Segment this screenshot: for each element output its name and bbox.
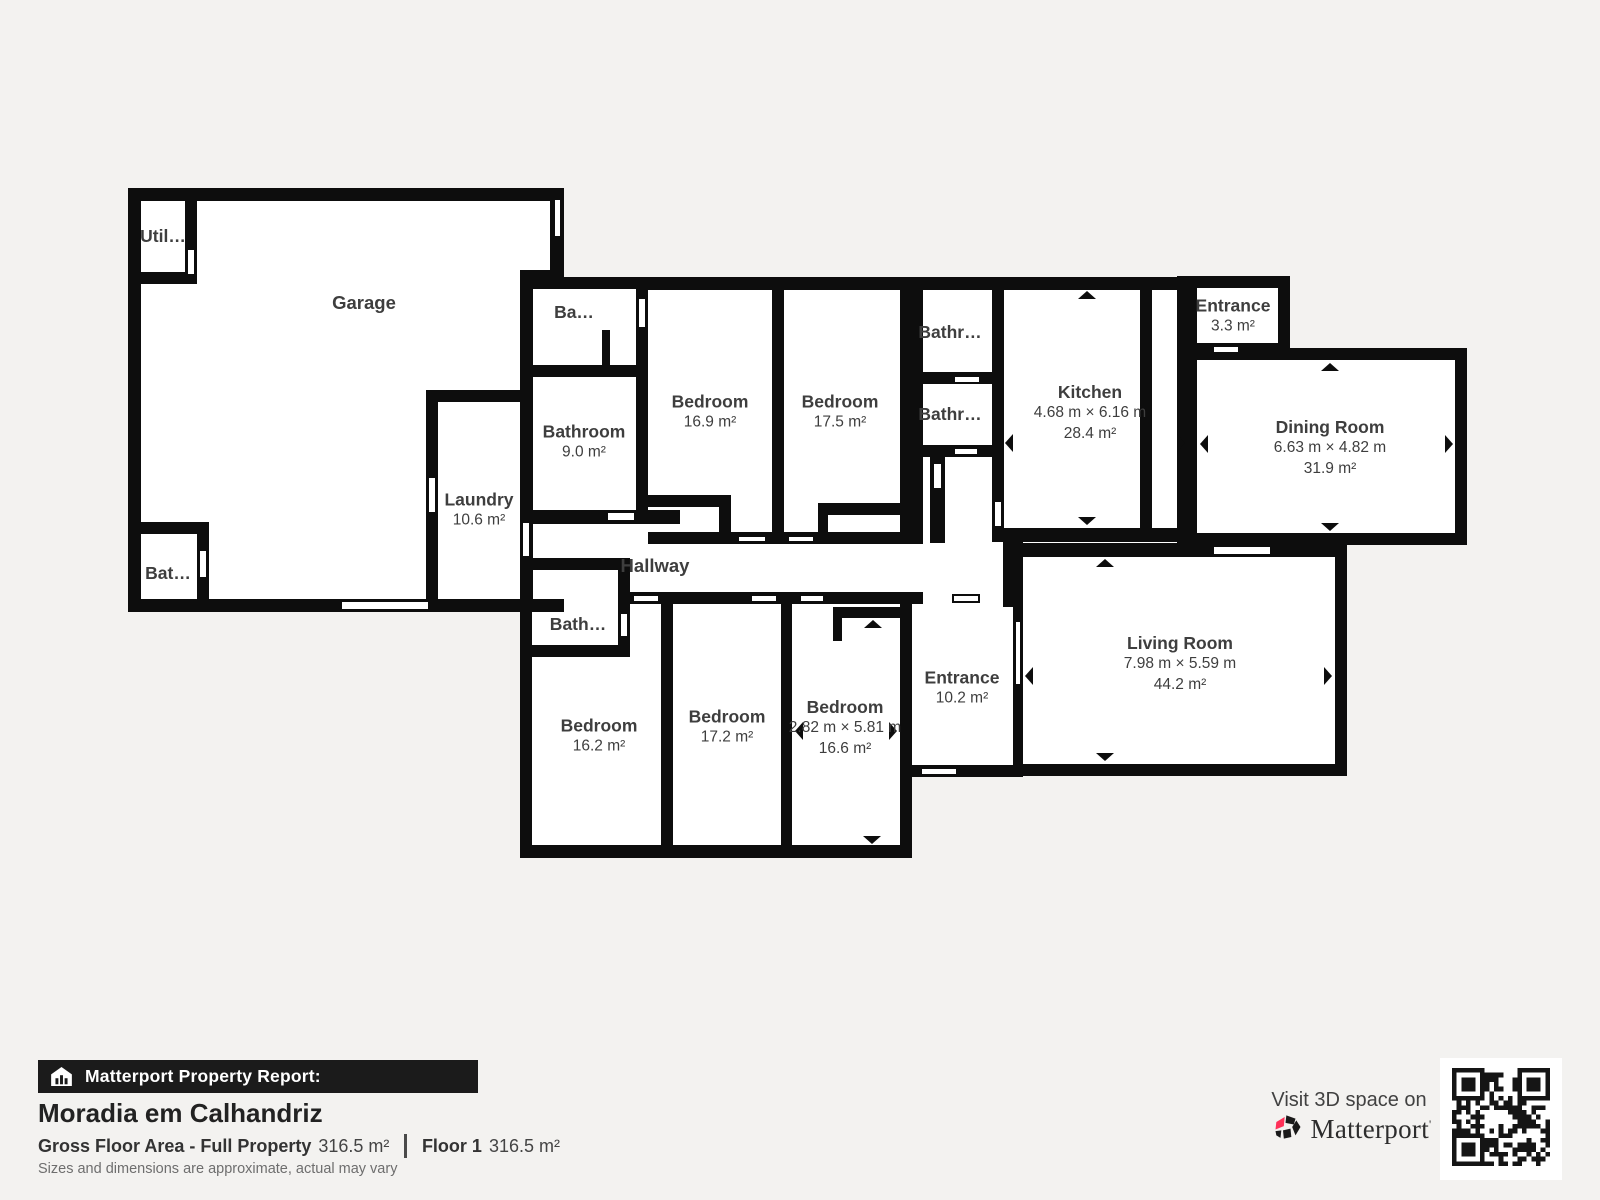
door-window-slot xyxy=(920,767,958,776)
room-label-bedroom-166: Bedroom 2.82 m × 5.81 m 16.6 m² xyxy=(789,697,901,759)
room-name: Bedroom xyxy=(802,392,879,412)
room-label-kitchen: Kitchen 4.68 m × 6.16 m 28.4 m² xyxy=(1034,382,1146,444)
room-label-bedroom-175: Bedroom 17.5 m² xyxy=(802,392,879,433)
dimension-arrow-up xyxy=(864,620,882,628)
room-name: Laundry xyxy=(444,490,513,510)
room-label-bedroom-172: Bedroom 17.2 m² xyxy=(689,707,766,748)
wall-segment xyxy=(426,390,530,402)
floor-value: 316.5 m² xyxy=(489,1136,560,1157)
wall-segment xyxy=(840,607,910,618)
dimension-arrow-down xyxy=(1078,517,1096,525)
room-area: 16.9 m² xyxy=(672,413,749,433)
floor-plan-page: Garage Util… Bat… Laundry 10.6 m² Ba… Ba… xyxy=(0,0,1600,1200)
house-chart-icon xyxy=(51,1067,72,1086)
door-window-slot xyxy=(953,375,981,384)
wall-segment xyxy=(520,510,680,524)
gfa-label: Gross Floor Area - Full Property xyxy=(38,1136,311,1157)
room-name: Kitchen xyxy=(1034,382,1146,402)
qr-code[interactable] xyxy=(1440,1058,1562,1180)
door-window-slot xyxy=(1212,545,1272,556)
door-window-slot xyxy=(993,500,1003,528)
room-label-bathroom-small-top: Ba… xyxy=(554,302,594,322)
room-label-bathroom-9: Bathroom 9.0 m² xyxy=(543,422,626,463)
room-name: Living Room xyxy=(1124,633,1236,653)
door-window-slot xyxy=(932,462,943,490)
dimension-arrow-right xyxy=(1324,667,1332,685)
room-area: 16.2 m² xyxy=(561,737,638,757)
room-name: Bedroom xyxy=(689,707,766,727)
door-window-slot xyxy=(521,521,531,558)
report-bar-label: Matterport Property Report: xyxy=(85,1066,321,1087)
dimension-arrow-right xyxy=(1177,434,1185,452)
room-name: Bedroom xyxy=(789,697,901,717)
room-name: Entrance xyxy=(1196,296,1271,316)
area-summary: Gross Floor Area - Full Property 316.5 m… xyxy=(38,1134,560,1158)
room-name: Bathroom xyxy=(543,422,626,442)
room-name: Dining Room xyxy=(1274,417,1386,437)
dimension-arrow-left xyxy=(1200,435,1208,453)
room-dimensions: 4.68 m × 6.16 m xyxy=(1034,403,1146,423)
room-label-bathroom-top-2: Bathr… xyxy=(918,404,981,424)
room-label-bedroom-169: Bedroom 16.9 m² xyxy=(672,392,749,433)
door-window-slot xyxy=(632,594,660,603)
room-area: 10.2 m² xyxy=(925,689,1000,709)
room-name: Entrance xyxy=(925,668,1000,688)
room-name: Bat… xyxy=(145,563,191,583)
gfa-value: 316.5 m² xyxy=(318,1136,389,1157)
dimension-arrow-down xyxy=(863,836,881,844)
room-area: 28.4 m² xyxy=(1034,424,1146,444)
wall-segment xyxy=(602,330,610,370)
door-window-slot xyxy=(340,600,430,611)
room-area: 44.2 m² xyxy=(1124,675,1236,695)
wall-segment xyxy=(1335,543,1347,776)
wall-segment xyxy=(520,558,630,570)
door-window-slot xyxy=(952,594,980,603)
room-label-bathroom-top-1: Bathr… xyxy=(918,322,981,342)
door-window-slot xyxy=(427,476,437,514)
wall-segment xyxy=(648,532,923,544)
wall-segment xyxy=(1013,543,1347,557)
dimension-arrow-left xyxy=(1005,434,1013,452)
wall-segment xyxy=(128,188,141,612)
room-label-dining: Dining Room 6.63 m × 4.82 m 31.9 m² xyxy=(1274,417,1386,479)
room-area: 10.6 m² xyxy=(444,511,513,531)
door-window-slot xyxy=(787,535,815,543)
room-area: 3.3 m² xyxy=(1196,317,1271,337)
dimension-arrow-up xyxy=(1321,363,1339,371)
room-name: Garage xyxy=(332,293,396,313)
door-window-slot xyxy=(606,511,636,522)
floor-label: Floor 1 xyxy=(422,1136,482,1157)
matterport-branding: Matterport' xyxy=(1262,1112,1442,1147)
wall-segment xyxy=(1177,276,1290,288)
door-window-slot xyxy=(198,549,208,579)
door-window-slot xyxy=(799,594,825,603)
wall-segment xyxy=(992,528,1187,542)
qr-modules xyxy=(1452,1068,1550,1171)
wall-segment xyxy=(1013,764,1347,776)
room-area: 31.9 m² xyxy=(1274,459,1386,479)
room-name: Bedroom xyxy=(561,716,638,736)
room-name: Hallway xyxy=(621,556,690,576)
matterport-logo-icon xyxy=(1273,1112,1303,1147)
room-name: Bathr… xyxy=(918,322,981,342)
room-label-garage: Garage xyxy=(332,293,396,313)
report-header-bar: Matterport Property Report: xyxy=(38,1060,478,1093)
dimension-arrow-right xyxy=(1445,435,1453,453)
disclaimer-text: Sizes and dimensions are approximate, ac… xyxy=(38,1161,397,1177)
room-label-utility: Util… xyxy=(140,226,186,246)
room-name: Util… xyxy=(140,226,186,246)
wall-segment xyxy=(818,503,828,544)
room-dimensions: 6.63 m × 4.82 m xyxy=(1274,438,1386,458)
wall-segment xyxy=(900,765,1023,777)
door-window-slot xyxy=(750,594,778,603)
door-window-slot xyxy=(619,612,629,638)
room-label-entrance-102: Entrance 10.2 m² xyxy=(925,668,1000,709)
wall-segment xyxy=(818,503,913,515)
property-title: Moradia em Calhandriz xyxy=(38,1098,323,1129)
dimension-arrow-down xyxy=(1321,523,1339,531)
dimension-arrow-down xyxy=(1096,753,1114,761)
door-window-slot xyxy=(637,297,647,329)
door-window-slot xyxy=(1212,345,1240,354)
room-area: 17.2 m² xyxy=(689,728,766,748)
dimension-arrow-up xyxy=(1096,559,1114,567)
visit-3d-text: Visit 3D space on xyxy=(1256,1089,1442,1112)
room-name: Ba… xyxy=(554,302,594,322)
wall-segment xyxy=(520,845,912,858)
door-window-slot xyxy=(737,535,767,543)
room-area: 9.0 m² xyxy=(543,443,626,463)
wall-segment xyxy=(520,277,648,289)
room-area: 16.6 m² xyxy=(789,739,901,759)
room-label-bedroom-162: Bedroom 16.2 m² xyxy=(561,716,638,757)
wall-segment xyxy=(520,645,630,657)
separator xyxy=(404,1134,407,1158)
wall-segment xyxy=(1455,348,1467,545)
wall-segment xyxy=(520,365,648,377)
matterport-wordmark: Matterport' xyxy=(1311,1114,1432,1145)
door-window-slot xyxy=(553,198,562,238)
room-label-laundry: Laundry 10.6 m² xyxy=(444,490,513,531)
room-name: Bathr… xyxy=(918,404,981,424)
wall-segment xyxy=(661,592,673,855)
door-window-slot xyxy=(1014,620,1022,686)
wall-segment xyxy=(833,607,842,641)
room-label-bathroom-lower: Bath… xyxy=(550,614,606,634)
door-window-slot xyxy=(953,447,979,456)
door-window-slot xyxy=(186,248,196,276)
room-name: Bath… xyxy=(550,614,606,634)
room-dimensions: 7.98 m × 5.59 m xyxy=(1124,654,1236,674)
wall-segment xyxy=(900,592,912,858)
room-label-bathroom-garage: Bat… xyxy=(145,563,191,583)
room-area: 17.5 m² xyxy=(802,413,879,433)
wall-segment xyxy=(1177,276,1197,545)
room-name: Bedroom xyxy=(672,392,749,412)
wall-segment xyxy=(772,289,784,544)
room-label-living: Living Room 7.98 m × 5.59 m 44.2 m² xyxy=(1124,633,1236,695)
room-dimensions: 2.82 m × 5.81 m xyxy=(789,718,901,738)
room-label-entrance-33: Entrance 3.3 m² xyxy=(1196,296,1271,337)
dimension-arrow-up xyxy=(1078,291,1096,299)
dimension-arrow-left xyxy=(1025,667,1033,685)
room-label-hallway: Hallway xyxy=(621,556,690,576)
